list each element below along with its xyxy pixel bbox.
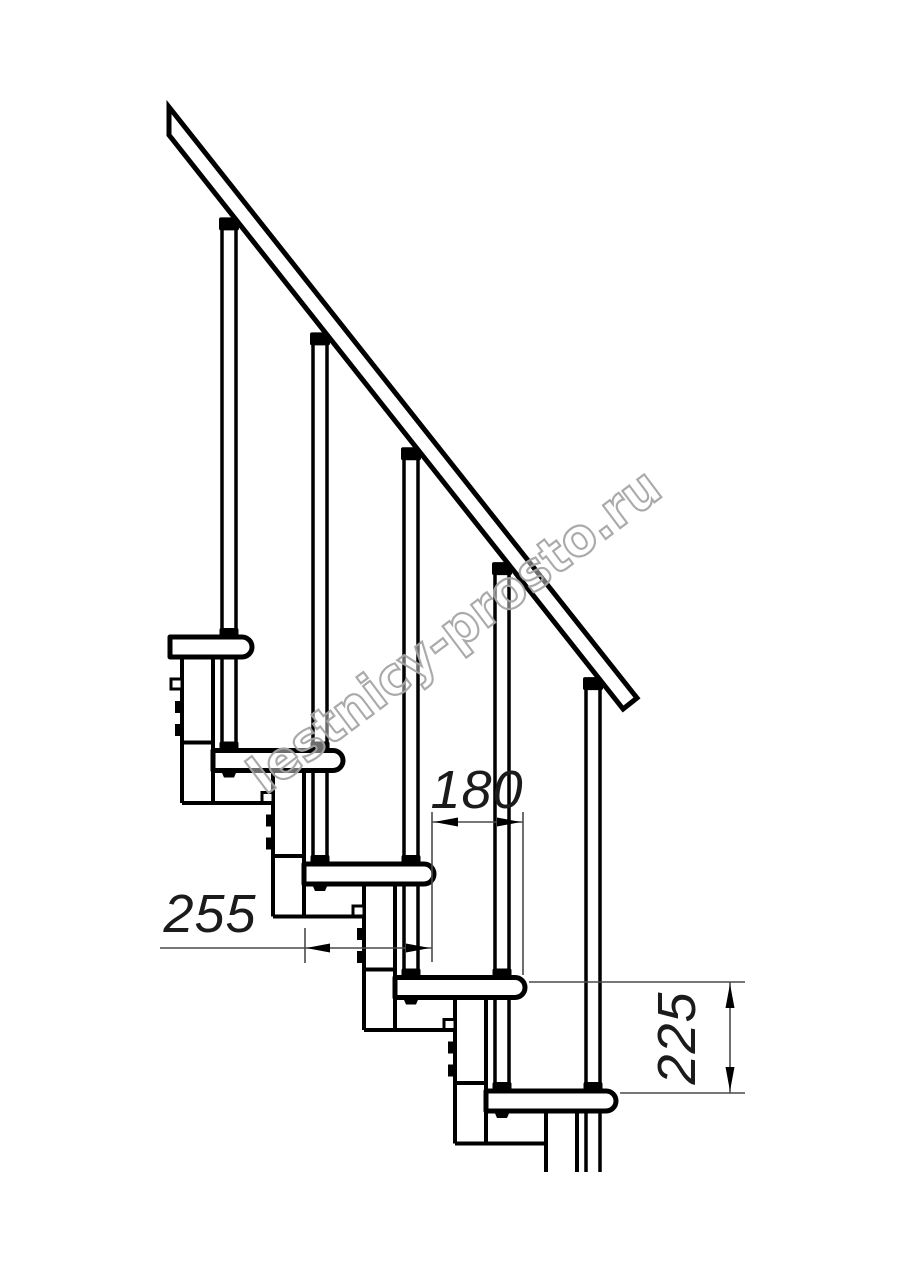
- staircase-blueprint: 180 255 225 lestnicy-prosto.ru: [0, 0, 914, 1280]
- dimension-rise-label: 225: [647, 991, 707, 1085]
- dimension-going-label: 180: [430, 760, 523, 820]
- blueprint-svg: 180 255 225 lestnicy-prosto.ru: [0, 0, 914, 1280]
- dimension-depth-label: 255: [162, 884, 256, 944]
- watermark-text: lestnicy-prosto.ru: [237, 457, 672, 806]
